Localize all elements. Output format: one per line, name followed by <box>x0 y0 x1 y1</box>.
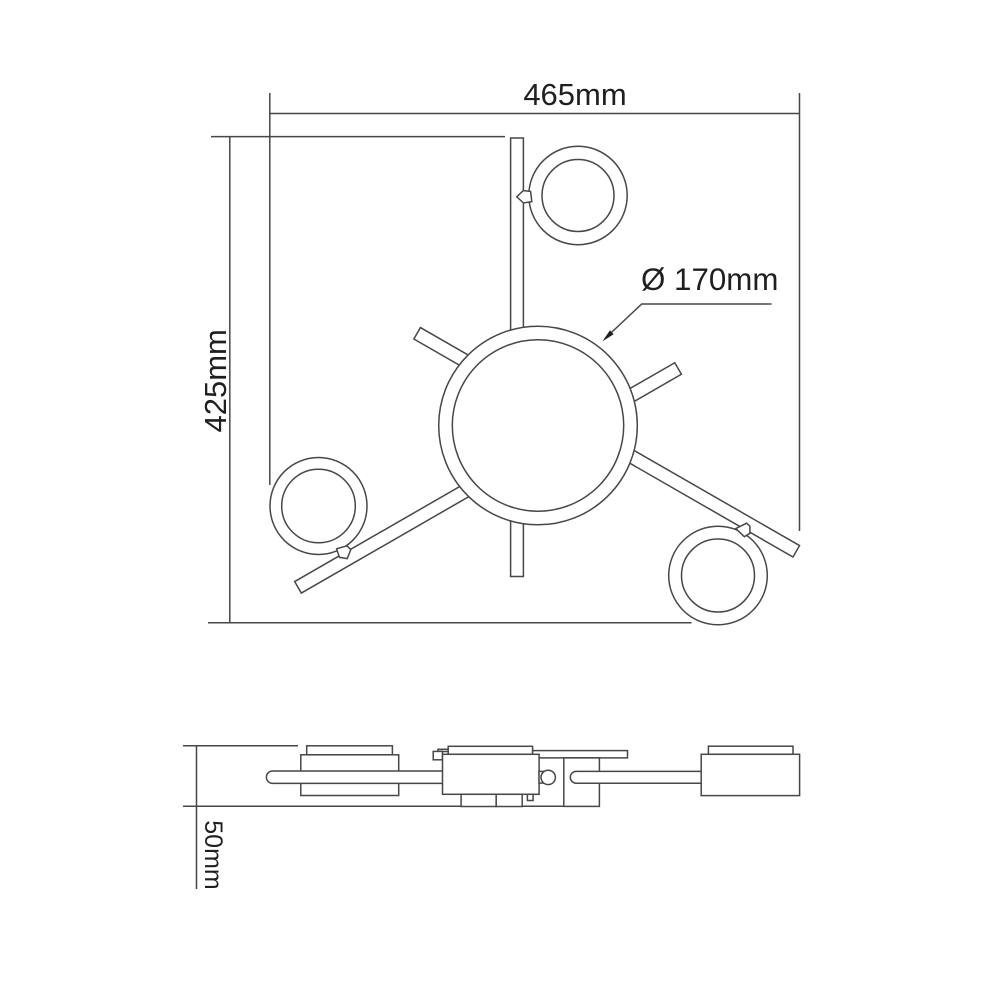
svg-text:Ø 170mm: Ø 170mm <box>641 262 778 297</box>
svg-text:425mm: 425mm <box>198 329 233 432</box>
svg-text:50mm: 50mm <box>199 820 227 889</box>
svg-text:465mm: 465mm <box>523 77 626 112</box>
